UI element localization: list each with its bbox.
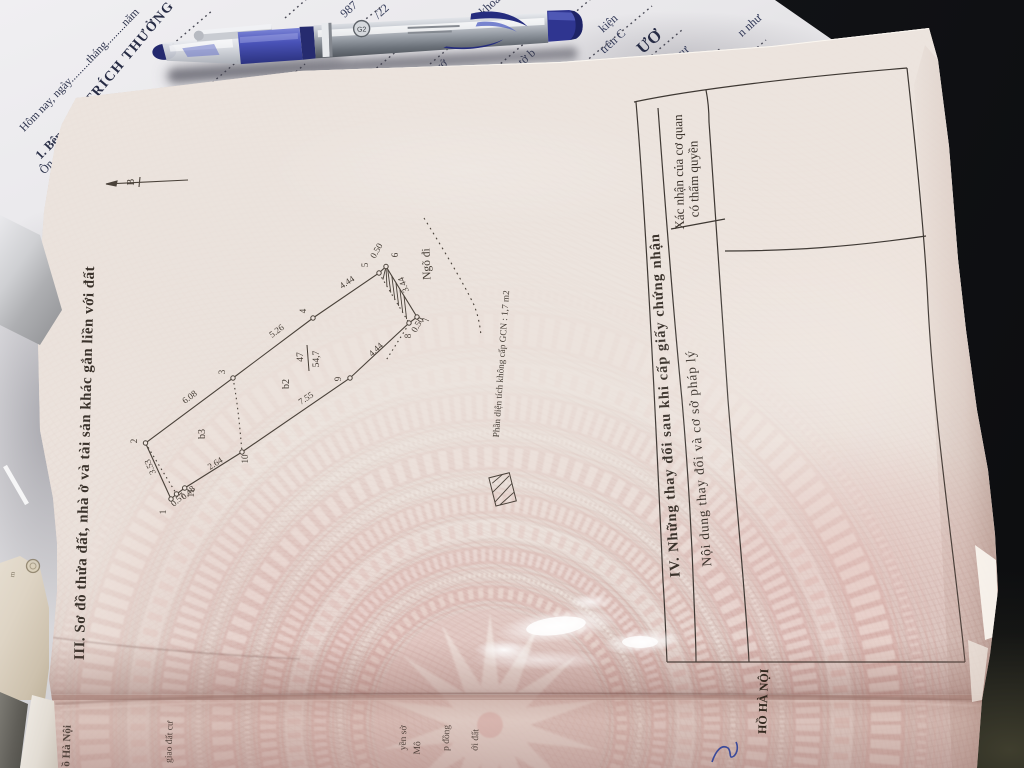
- svg-text:47: 47: [296, 352, 306, 362]
- svg-text:54,7: 54,7: [312, 350, 322, 367]
- svg-text:p đồng: p đồng: [441, 724, 453, 751]
- svg-text:ồ Hà Nội: ồ Hà Nội: [60, 725, 73, 768]
- svg-text:9: 9: [333, 376, 343, 381]
- svg-text:Ngõ đi: Ngõ đi: [420, 248, 433, 280]
- svg-text:7: 7: [421, 317, 431, 322]
- svg-text:8: 8: [403, 333, 413, 338]
- svg-text:yền sở: yền sở: [398, 724, 410, 750]
- svg-text:6: 6: [390, 252, 400, 257]
- svg-text:Mô: Mô: [413, 741, 423, 755]
- svg-text:10: 10: [240, 454, 250, 464]
- svg-text:HỒ HÀ NỘI: HỒ HÀ NỘI: [754, 668, 771, 734]
- svg-text:2: 2: [129, 439, 139, 444]
- svg-text:có thẩm quyền: có thẩm quyền: [685, 140, 701, 217]
- svg-text:B: B: [126, 178, 137, 185]
- svg-text:1: 1: [158, 510, 168, 515]
- svg-text:4: 4: [298, 308, 308, 313]
- svg-text:m: m: [8, 571, 17, 578]
- svg-text:b3: b3: [197, 429, 208, 439]
- svg-text:ới đất: ới đất: [470, 729, 482, 751]
- svg-text:giao đất cư: giao đất cư: [163, 720, 175, 763]
- svg-text:b2: b2: [281, 379, 292, 389]
- svg-text:11: 11: [186, 489, 196, 498]
- svg-text:3: 3: [217, 369, 227, 374]
- svg-text:5: 5: [360, 262, 370, 267]
